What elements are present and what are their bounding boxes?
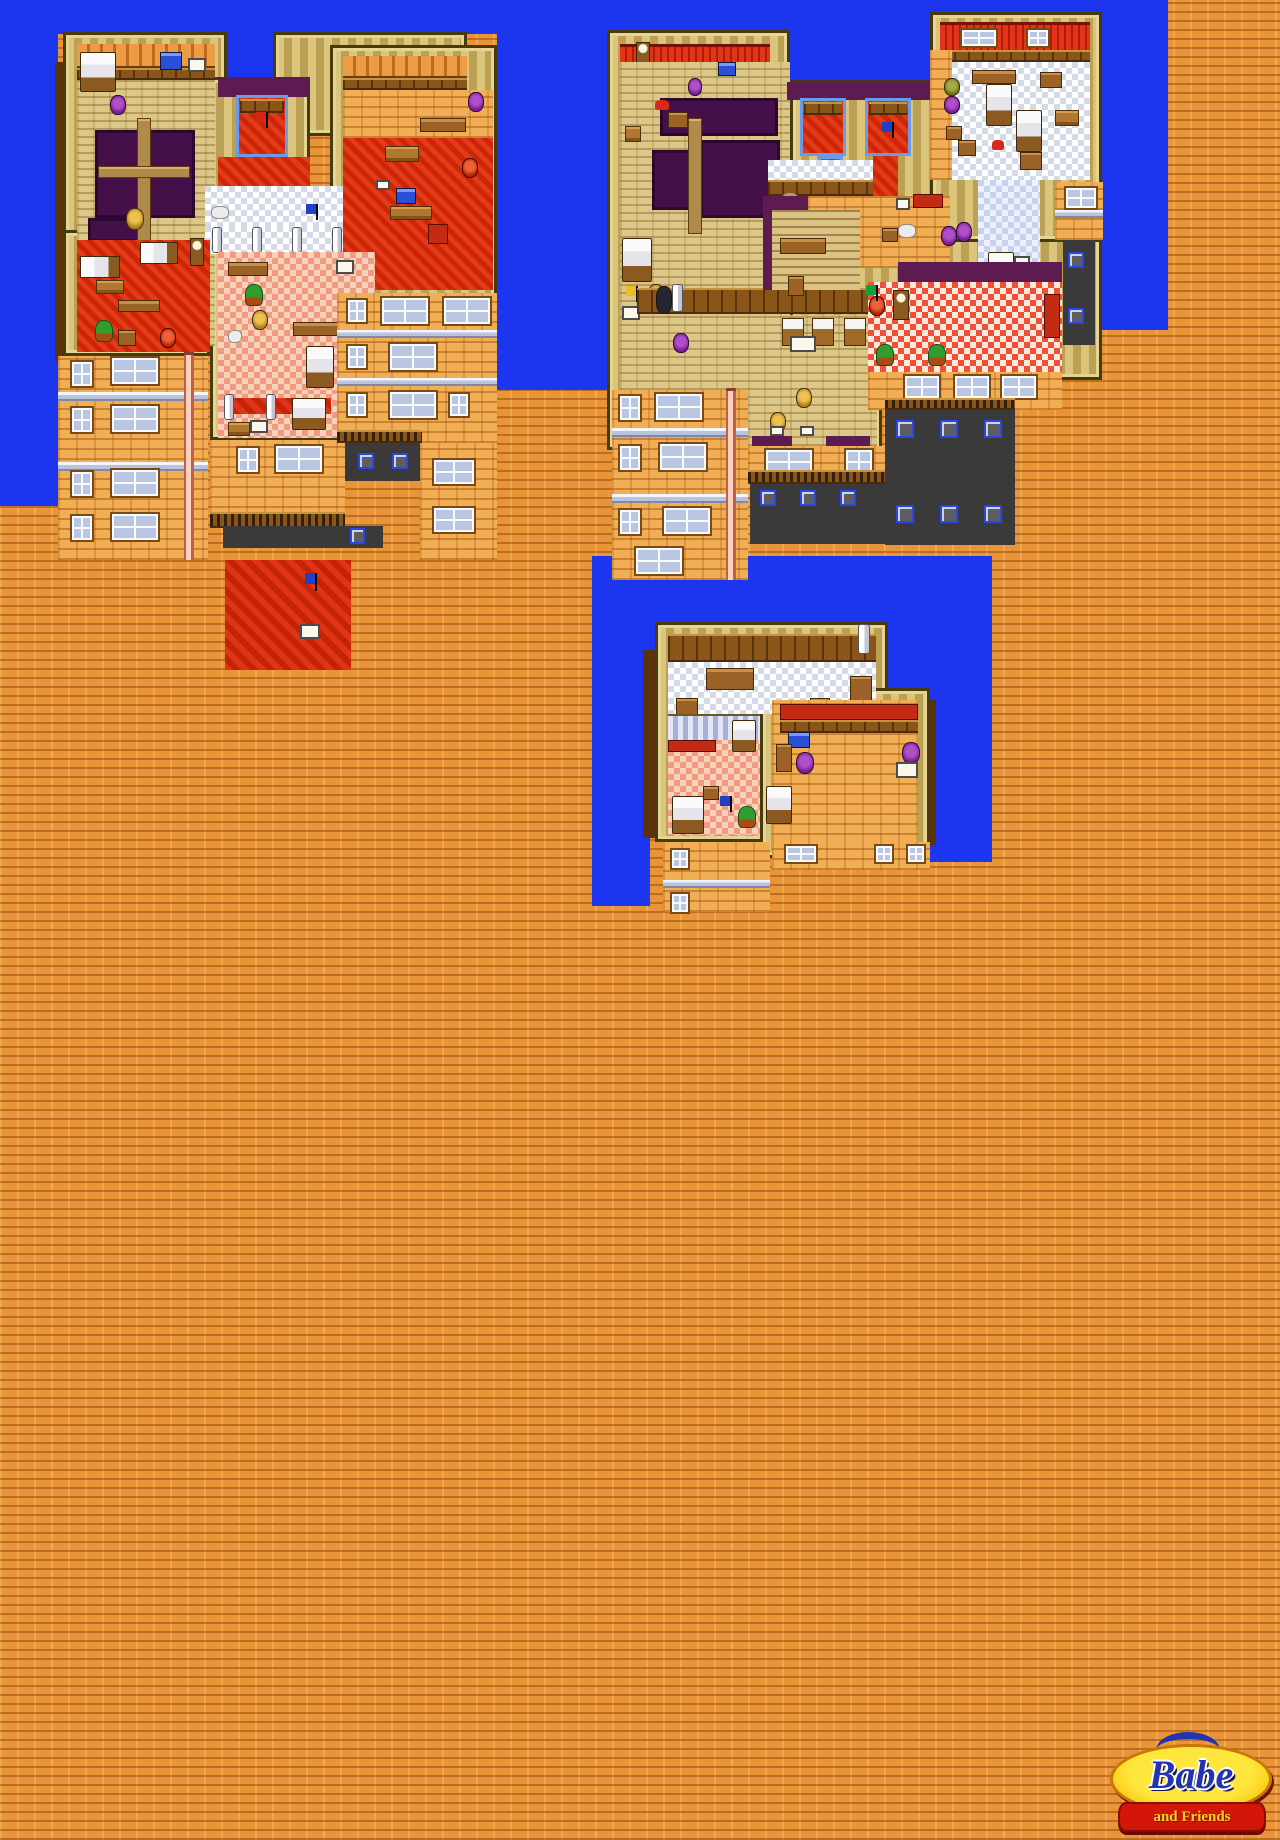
palm-plant	[876, 344, 894, 366]
b2-purple-wall	[898, 262, 1062, 282]
palm-plant	[245, 284, 263, 306]
facade-window	[72, 408, 92, 432]
chair	[844, 318, 866, 346]
map-canvas: Babe and Friends	[0, 0, 1280, 1840]
facade-window	[238, 448, 258, 472]
terminal-sign	[336, 260, 354, 274]
blue-flag	[882, 122, 894, 138]
logo-subtitle: and Friends	[1153, 1809, 1230, 1826]
facade-window	[434, 508, 474, 532]
column	[332, 227, 342, 253]
blue-window	[940, 505, 958, 523]
paper-sign	[800, 426, 814, 436]
facade-window	[450, 394, 468, 416]
crate	[882, 228, 898, 242]
facade-window	[786, 846, 816, 862]
facade-window	[112, 514, 158, 540]
olive-pot	[944, 78, 960, 96]
blue-flag	[720, 796, 732, 812]
balcony-band	[885, 398, 1015, 410]
blue-flag	[305, 573, 317, 591]
facade-window	[72, 516, 92, 540]
gold-pot	[796, 388, 812, 408]
dresser	[96, 280, 124, 294]
blue-window	[1068, 308, 1084, 324]
b1-hall-purple-wall	[218, 77, 310, 97]
facade-window	[672, 850, 688, 868]
blue-window	[800, 490, 816, 506]
crate	[668, 112, 688, 128]
facade-window	[905, 376, 939, 398]
bed	[766, 786, 792, 824]
cat-sprite	[211, 206, 229, 219]
dresser	[1055, 110, 1079, 126]
crate	[946, 126, 962, 140]
grandfather-clock	[893, 290, 909, 320]
facade-window	[620, 510, 640, 534]
facade-window	[390, 344, 436, 370]
facade-window	[656, 394, 702, 420]
paper-sign	[770, 426, 784, 436]
facade-window	[112, 406, 158, 432]
facade-ledge	[663, 880, 770, 888]
bed	[622, 238, 652, 282]
crate	[958, 140, 976, 156]
blue-window	[392, 453, 408, 469]
dresser	[228, 422, 250, 436]
roof-window	[1028, 30, 1048, 46]
easel-sign	[896, 762, 918, 778]
red-bench	[1044, 294, 1060, 338]
red-chest	[428, 224, 448, 244]
water-mid-left	[592, 790, 650, 906]
roof-window	[962, 30, 996, 46]
facade-window	[444, 298, 490, 324]
column	[292, 227, 302, 253]
b1-right-shelf	[343, 78, 467, 90]
curtain-frill	[668, 740, 716, 752]
bed	[672, 796, 704, 834]
facade-window	[908, 846, 924, 862]
water-right	[1100, 34, 1168, 330]
wall-sign	[188, 58, 206, 72]
b2-beam	[688, 118, 702, 234]
facade-window	[382, 298, 428, 324]
desk	[228, 262, 268, 276]
bookshelf	[788, 276, 804, 296]
purple-pot	[941, 226, 957, 246]
facade-window	[660, 444, 706, 470]
facade-window	[620, 396, 640, 420]
red-valance	[780, 704, 918, 720]
table-sign	[250, 420, 268, 433]
bed	[732, 720, 756, 752]
column	[672, 284, 683, 312]
facade-window	[1002, 376, 1036, 398]
blue-window	[760, 490, 776, 506]
green-flag	[866, 285, 878, 301]
facade-window	[72, 472, 92, 496]
bed	[80, 52, 116, 92]
facade-ledge	[337, 330, 497, 338]
bed	[986, 84, 1012, 126]
facade-window	[876, 846, 892, 862]
purple-pot	[902, 742, 920, 764]
blue-window	[840, 490, 856, 506]
facade-window	[1066, 188, 1096, 208]
facade-window	[390, 392, 436, 418]
bed	[80, 256, 120, 278]
purple-pot	[468, 92, 484, 112]
balcony-band	[337, 430, 422, 443]
red-stove	[913, 194, 943, 208]
column	[212, 227, 222, 253]
facade-window	[620, 446, 640, 470]
column	[266, 394, 276, 420]
bookshelf	[776, 744, 792, 772]
blue-window	[940, 420, 958, 438]
red-shoes	[992, 140, 1004, 150]
drainpipe	[726, 388, 736, 580]
bench	[420, 118, 466, 132]
b2-checker-strip	[768, 160, 873, 180]
paper-sign	[376, 180, 390, 190]
duck-sprite	[228, 330, 242, 343]
facade-window	[348, 300, 366, 322]
blue-window	[1068, 252, 1084, 268]
bed	[292, 398, 326, 430]
table	[780, 238, 826, 254]
table	[706, 668, 754, 690]
purple-pot	[110, 95, 126, 115]
facade-window	[112, 358, 158, 384]
b1-cross-beam-horizontal	[98, 166, 190, 178]
column	[252, 227, 262, 253]
bed	[140, 242, 178, 264]
red-pot	[160, 328, 176, 348]
b1-red-corridor	[218, 157, 310, 187]
bookshelf	[850, 676, 872, 702]
bed	[306, 346, 334, 388]
blue-window	[350, 528, 365, 544]
purple-pot	[673, 333, 689, 353]
palm-plant	[95, 320, 113, 342]
crate	[1040, 72, 1062, 88]
desk	[118, 300, 160, 312]
courtyard-red-carpet	[225, 560, 351, 670]
purple-pot	[944, 96, 960, 114]
crate	[118, 330, 136, 346]
facade-window	[664, 508, 710, 534]
shop-sign	[896, 198, 910, 210]
dog-sprite	[898, 224, 916, 238]
blue-window	[358, 453, 374, 469]
dresser	[390, 206, 432, 220]
dark-entrance	[345, 443, 420, 481]
facade-window	[348, 346, 366, 368]
blue-flag	[306, 204, 318, 220]
logo-banner: and Friends	[1118, 1802, 1266, 1832]
facade-window	[955, 376, 989, 398]
b2-wall-column	[930, 50, 952, 180]
balcony-band	[748, 470, 885, 484]
facade-window	[672, 894, 688, 912]
gold-pot	[126, 208, 144, 230]
facade-window	[434, 460, 474, 484]
blue-window	[896, 505, 914, 523]
palm-plant	[738, 806, 756, 828]
b2-right-shelf	[940, 50, 1090, 62]
facade-ledge	[1055, 210, 1103, 218]
water-mid-right	[927, 790, 992, 862]
facade-window	[276, 446, 322, 472]
bed	[1016, 110, 1042, 152]
purple-pot	[688, 78, 702, 96]
blue-window	[896, 420, 914, 438]
palm-plant	[928, 344, 946, 366]
facade-window	[72, 362, 92, 386]
blue-basin	[396, 188, 416, 204]
red-shoes	[655, 100, 669, 110]
facade-ledge	[337, 378, 497, 386]
b1-right-panelwall	[343, 56, 467, 78]
bookshelf-band	[240, 99, 284, 113]
dresser	[385, 146, 419, 162]
babe-logo: Babe and Friends	[1108, 1738, 1272, 1834]
drainpipe	[184, 352, 194, 560]
red-flag	[256, 112, 268, 128]
crate	[703, 786, 719, 800]
blue-window	[984, 505, 1002, 523]
grandfather-clock	[190, 238, 204, 266]
water-notch-building2	[783, 34, 930, 80]
blue-basin	[718, 62, 736, 76]
courtyard-sign	[300, 624, 320, 639]
water-left	[0, 34, 58, 506]
tablecloth	[790, 336, 816, 352]
blue-window	[984, 420, 1002, 438]
crate	[1020, 152, 1042, 170]
facade-window	[112, 470, 158, 496]
b3-shelf-band	[668, 634, 876, 662]
b2-floor-pit	[652, 150, 692, 210]
water-gap-central	[497, 34, 607, 390]
bookshelf-band	[869, 102, 907, 115]
gold-pot	[252, 310, 268, 330]
shelf-table	[972, 70, 1016, 84]
bookshelf-band	[804, 102, 842, 115]
logo-title: Babe	[1113, 1751, 1269, 1798]
water-notch-building1	[225, 34, 273, 78]
purple-pot	[796, 752, 814, 774]
shopkeeper-sprite	[656, 286, 672, 314]
facade-window	[636, 548, 682, 574]
facade-window	[348, 394, 366, 416]
shadow-building3-left	[643, 650, 655, 838]
purple-pot	[956, 222, 972, 242]
b2-red-corridor	[873, 156, 898, 196]
dresser	[625, 126, 641, 142]
red-pot	[462, 158, 478, 178]
column	[858, 624, 870, 654]
blue-basin	[160, 52, 182, 70]
column	[224, 394, 234, 420]
